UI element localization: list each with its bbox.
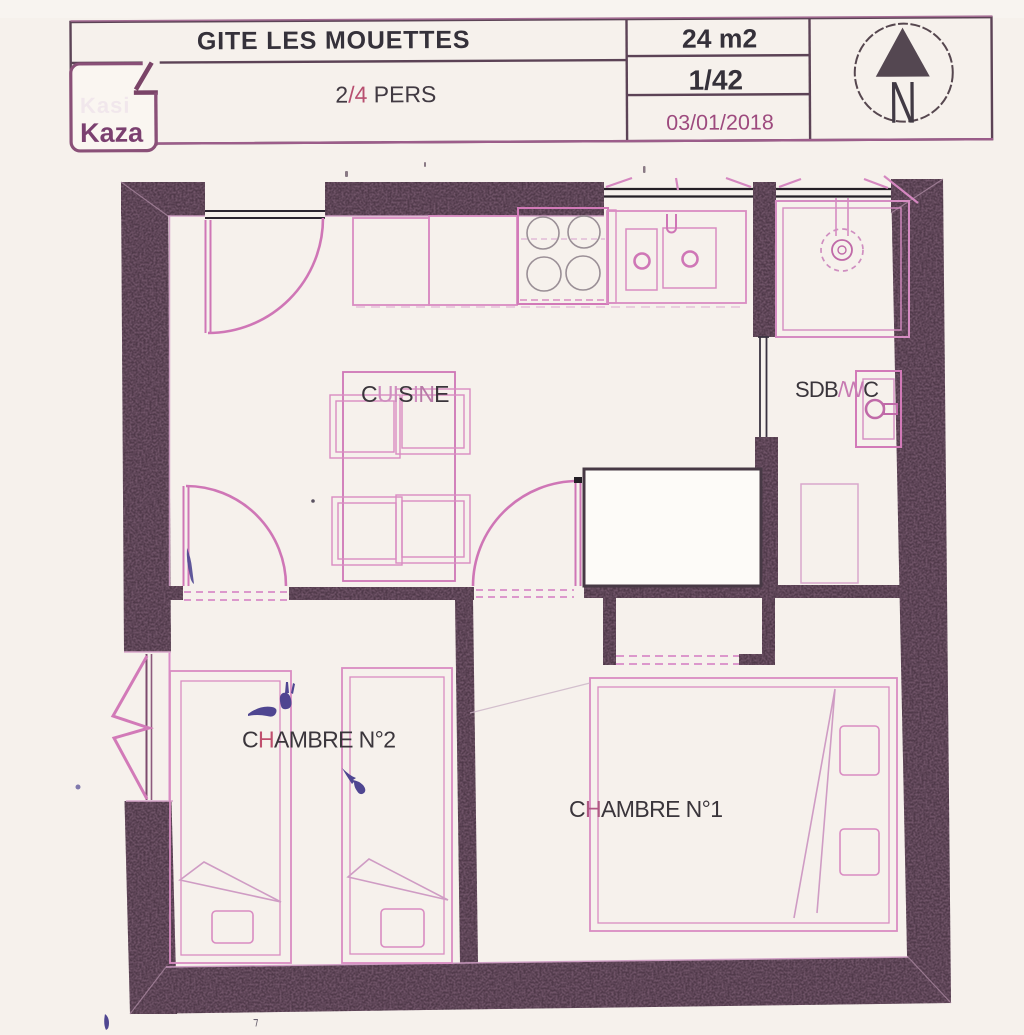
svg-text:Kasi: Kasi (80, 93, 131, 118)
svg-text:Kaza: Kaza (80, 118, 144, 148)
svg-text:CHAMBRE N°1: CHAMBRE N°1 (569, 796, 722, 822)
svg-text:CUISINE: CUISINE (361, 381, 449, 407)
svg-text:03/01/2018: 03/01/2018 (666, 110, 774, 135)
svg-text:GITE LES MOUETTES: GITE LES MOUETTES (197, 26, 470, 55)
svg-text:SDB/WC: SDB/WC (795, 377, 879, 402)
svg-text:CHAMBRE N°2: CHAMBRE N°2 (242, 727, 395, 753)
svg-text:24 m2: 24 m2 (682, 23, 757, 53)
svg-text:N: N (889, 70, 917, 136)
svg-text:2/4 PERS: 2/4 PERS (335, 81, 436, 108)
svg-text:⁊: ⁊ (253, 1016, 258, 1028)
svg-text:1/42: 1/42 (688, 64, 743, 95)
